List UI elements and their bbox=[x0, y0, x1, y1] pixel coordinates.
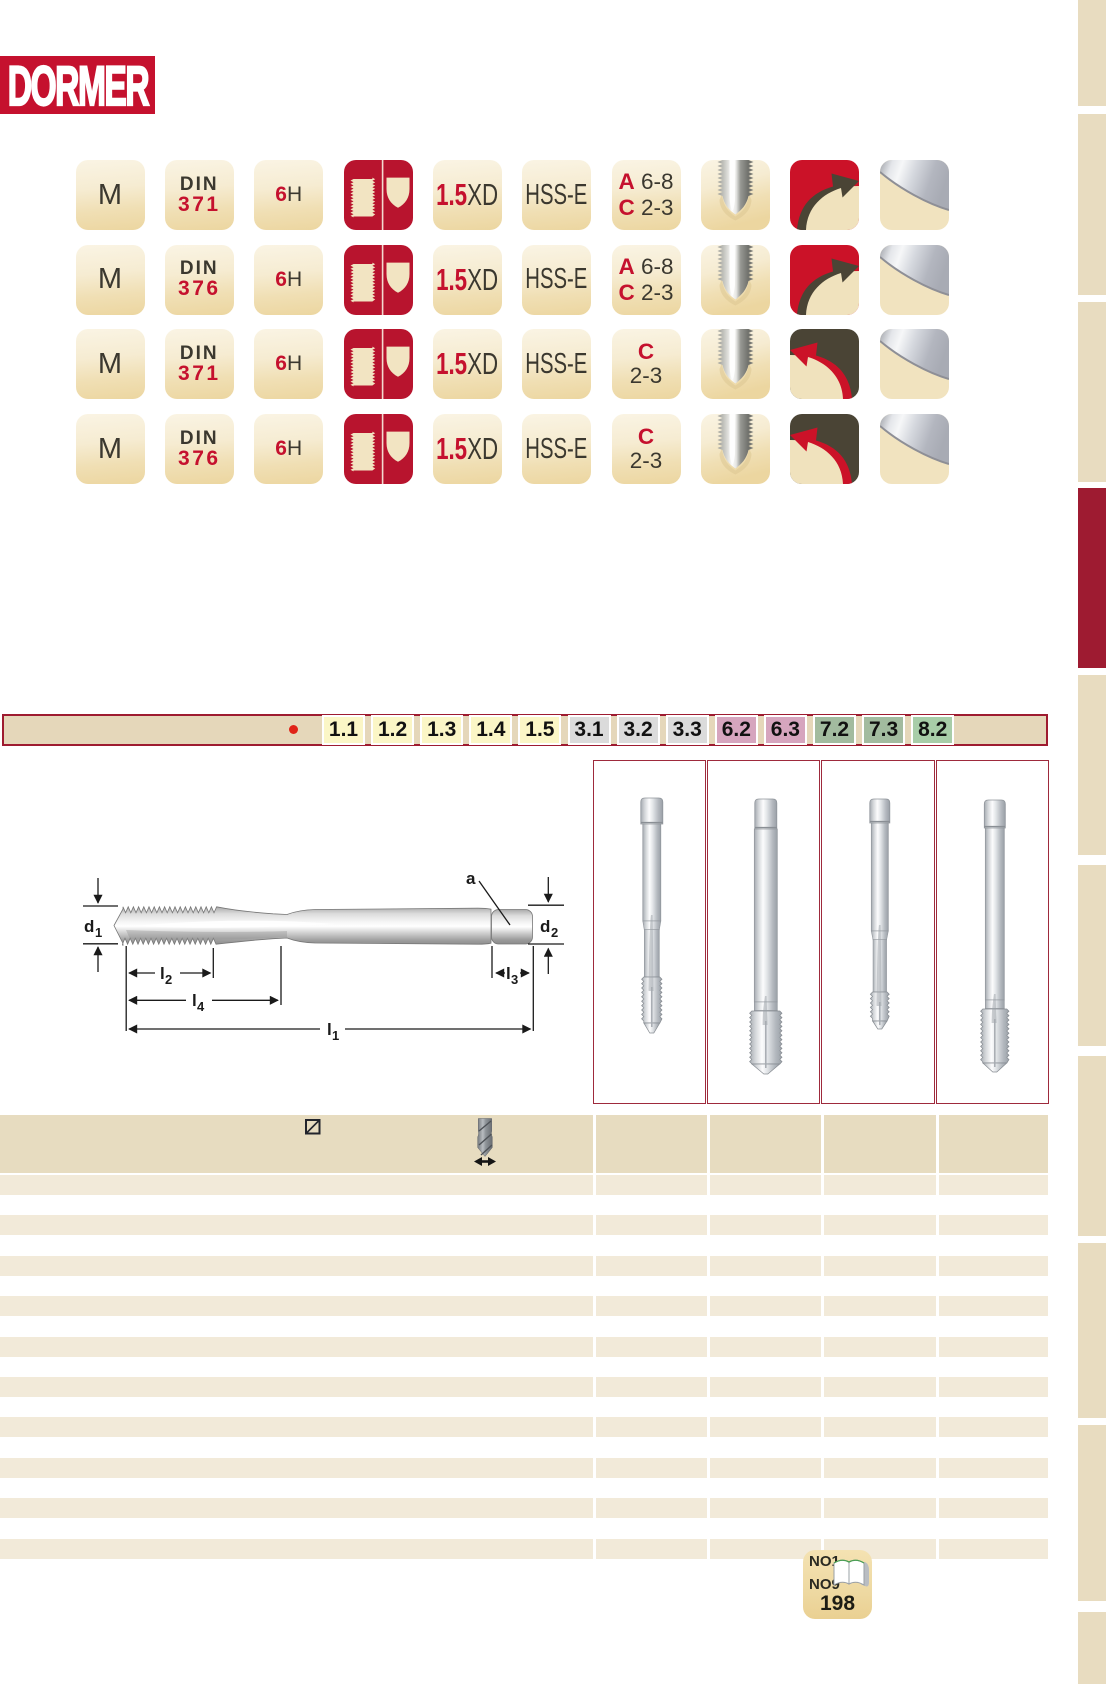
svg-text:d: d bbox=[84, 917, 94, 936]
svg-text:3: 3 bbox=[511, 972, 518, 987]
svg-text:2: 2 bbox=[551, 925, 558, 940]
svg-text:4: 4 bbox=[197, 999, 205, 1014]
svg-text:1: 1 bbox=[332, 1028, 339, 1043]
svg-text:2: 2 bbox=[165, 972, 172, 987]
svg-text:d: d bbox=[540, 917, 550, 936]
svg-text:1: 1 bbox=[95, 925, 102, 940]
svg-text:a: a bbox=[466, 869, 476, 888]
